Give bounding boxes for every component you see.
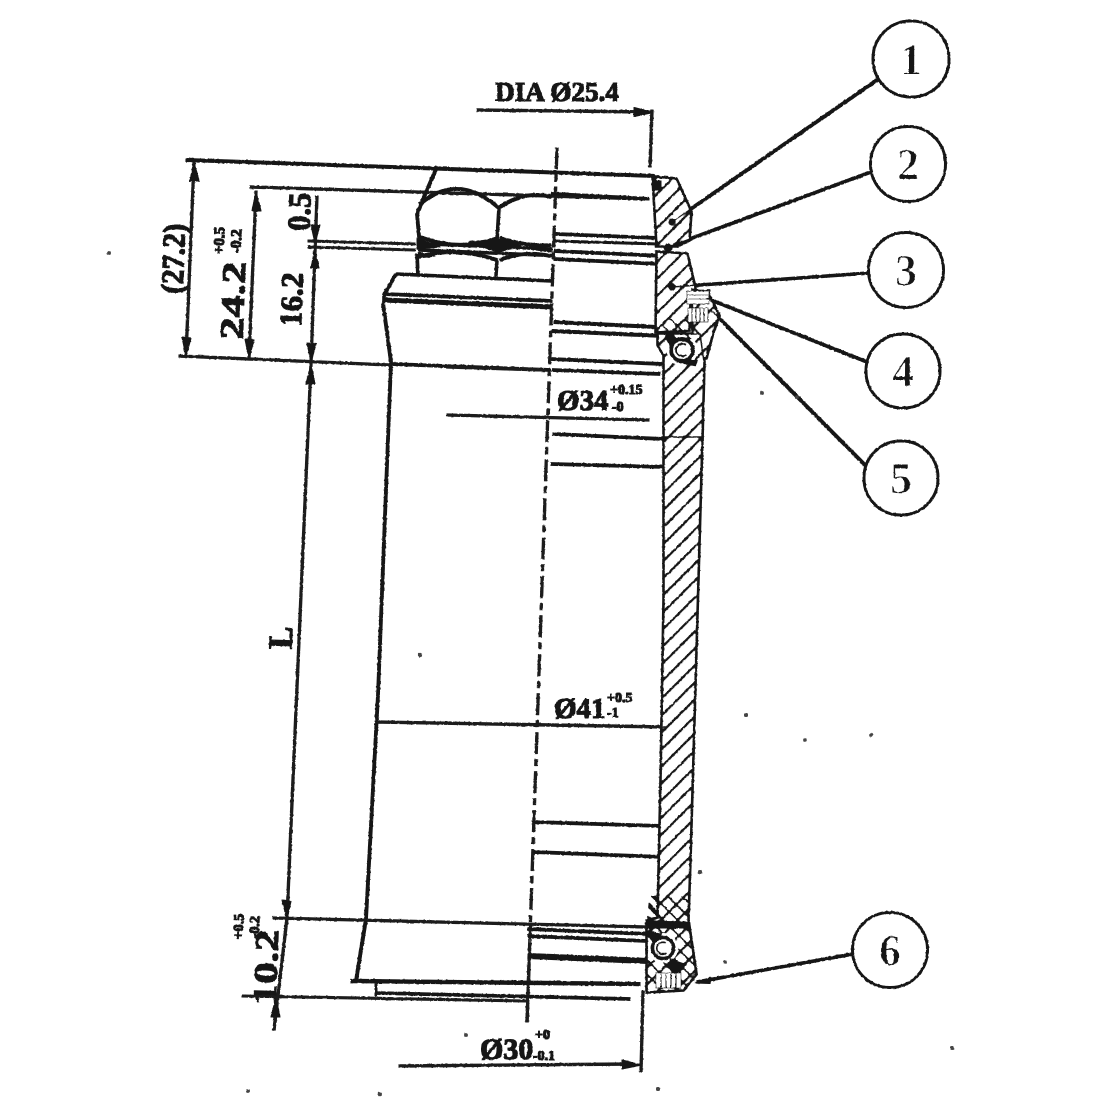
svg-text:10.2: 10.2: [248, 929, 287, 1006]
svg-text:-1: -1: [607, 706, 619, 721]
svg-text:-0.1: -0.1: [533, 1049, 555, 1064]
svg-text:-0.2: -0.2: [248, 916, 264, 939]
svg-text:-0.2: -0.2: [229, 229, 246, 253]
svg-text:Ø30: Ø30: [480, 1033, 533, 1066]
svg-text:+0: +0: [535, 1028, 550, 1043]
svg-text:0.5: 0.5: [280, 192, 317, 231]
svg-text:6: 6: [879, 926, 901, 975]
svg-text:24.2: 24.2: [215, 261, 254, 340]
svg-text:Ø41: Ø41: [554, 693, 606, 725]
svg-text:(27.2): (27.2): [154, 223, 192, 294]
svg-text:1: 1: [900, 35, 922, 84]
svg-text:16.2: 16.2: [273, 272, 310, 327]
svg-text:2: 2: [897, 140, 919, 189]
svg-text:Ø34: Ø34: [557, 385, 609, 417]
svg-text:L: L: [263, 626, 301, 650]
svg-text:+0.5: +0.5: [212, 227, 229, 255]
svg-text:3: 3: [895, 246, 917, 295]
svg-text:4: 4: [892, 347, 914, 396]
svg-text:+0.5: +0.5: [232, 914, 248, 940]
svg-text:+0.5: +0.5: [607, 691, 632, 706]
svg-text:DIA Ø25.4: DIA Ø25.4: [495, 77, 619, 107]
svg-text:5: 5: [890, 454, 912, 503]
svg-text:+0.15: +0.15: [610, 383, 642, 398]
svg-text:-0: -0: [612, 400, 624, 415]
